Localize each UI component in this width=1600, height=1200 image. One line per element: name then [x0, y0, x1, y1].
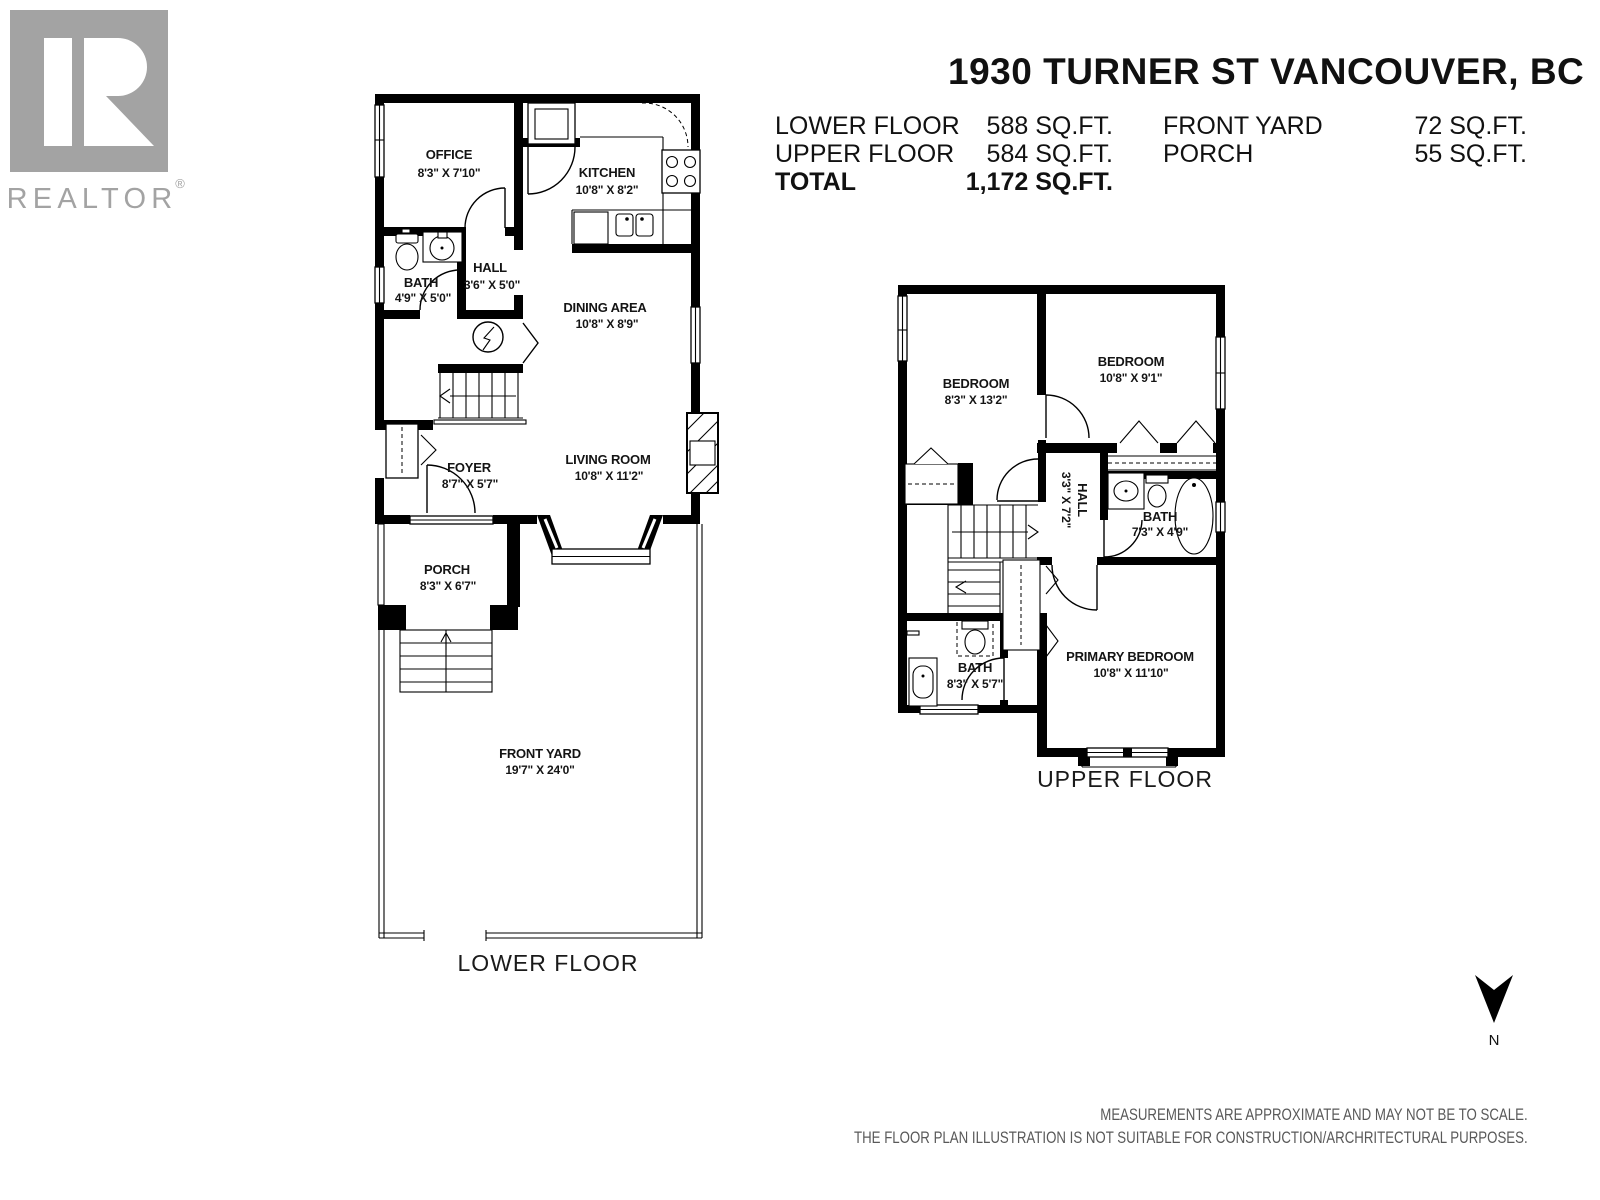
porch-side-wall	[378, 524, 384, 605]
kitchen-door	[528, 147, 575, 194]
room-dims-bath: 4'9" X 5'0"	[395, 291, 451, 305]
room-label-office: OFFICE	[426, 147, 473, 162]
bath-lower-sink	[907, 631, 937, 706]
electrical-panel-icon	[473, 322, 503, 352]
bath-upper-sink	[1108, 473, 1144, 509]
bath-window	[375, 267, 384, 303]
room-dims-living: 10'8" X 11'2"	[575, 469, 644, 483]
north-label: N	[1489, 1032, 1500, 1049]
room-dims-bath-lower: 8'3" X 5'7"	[947, 677, 1003, 691]
floor-plan-canvas: OFFICE 8'3" X 7'10" KITCHEN 10'8" X 8'2"…	[0, 0, 1600, 1200]
room-dims-foyer: 8'7" X 5'7"	[442, 477, 498, 491]
room-label-kitchen: KITCHEN	[579, 165, 635, 180]
bath-upper-window	[1216, 502, 1225, 532]
room-label-porch: PORCH	[424, 562, 470, 577]
bath-sink	[423, 232, 462, 262]
room-label-bath-upper: BATH	[1143, 509, 1177, 524]
room-dims-hall: 3'6" X 5'0"	[464, 278, 520, 292]
room-label-hall: HALL	[473, 260, 507, 275]
room-dims-bedroom-left: 8'3" X 13'2"	[945, 393, 1008, 407]
room-label-upper-hall: HALL	[1075, 483, 1090, 517]
kitchen-sink	[616, 214, 653, 236]
room-dims-upper-hall: 3'3" X 7'2"	[1059, 472, 1073, 528]
office-window	[375, 105, 384, 177]
stove	[662, 150, 700, 193]
lower-floor-plan: OFFICE 8'3" X 7'10" KITCHEN 10'8" X 8'2"…	[375, 94, 718, 941]
room-label-bedroom-right: BEDROOM	[1098, 354, 1165, 369]
office-door	[465, 188, 505, 228]
bedroom-left-door	[997, 459, 1038, 501]
porch-pillar-right	[490, 605, 518, 630]
room-dims-primary: 10'8" X 11'10"	[1093, 666, 1168, 680]
room-dims-bedroom-right: 10'8" X 9'1"	[1100, 371, 1163, 385]
room-label-dining: DINING AREA	[563, 300, 647, 315]
dining-window	[691, 307, 700, 363]
refrigerator	[528, 103, 575, 144]
room-dims-front-yard: 19'7" X 24'0"	[505, 763, 574, 777]
bedroom-left-closet	[905, 448, 958, 504]
stairs-lower	[434, 373, 526, 424]
bay-window	[552, 549, 650, 564]
fireplace	[687, 413, 718, 493]
room-label-bath-lower: BATH	[958, 660, 992, 675]
porch-pillar-left	[378, 605, 406, 630]
room-dims-porch: 8'3" X 6'7"	[420, 579, 476, 593]
dining-opening-marker	[523, 323, 538, 363]
room-label-bedroom-left: BEDROOM	[943, 376, 1010, 391]
bedroom-left-window	[898, 296, 907, 361]
dishwasher	[574, 212, 608, 244]
bedroom-right-window	[1216, 337, 1225, 409]
bedroom-right-door	[1046, 395, 1089, 438]
room-dims-bath-upper: 7'3" X 4'9"	[1132, 525, 1188, 539]
room-label-foyer: FOYER	[447, 460, 492, 475]
toilet	[396, 229, 418, 270]
room-label-bath: BATH	[404, 275, 438, 290]
front-door-threshold	[410, 516, 493, 524]
room-dims-dining: 10'8" X 8'9"	[576, 317, 639, 331]
bath-upper-toilet	[1146, 475, 1168, 507]
north-arrow-icon: N	[1475, 975, 1513, 1049]
foyer-closet	[386, 424, 436, 478]
hall-closet	[1003, 560, 1058, 657]
room-label-front-yard: FRONT YARD	[499, 746, 581, 761]
primary-bedroom-door	[1052, 565, 1097, 610]
upper-floor-plan: BEDROOM 8'3" X 13'2" BEDROOM 10'8" X 9'1…	[898, 285, 1225, 767]
bathtub	[1175, 478, 1213, 554]
room-label-primary: PRIMARY BEDROOM	[1066, 649, 1194, 664]
porch-steps	[400, 630, 492, 692]
primary-bedroom-window	[1078, 748, 1178, 767]
bath-lower-toilet	[957, 618, 993, 656]
room-dims-office: 8'3" X 7'10"	[418, 166, 481, 180]
room-dims-kitchen: 10'8" X 8'2"	[576, 183, 639, 197]
room-label-living: LIVING ROOM	[565, 452, 650, 467]
